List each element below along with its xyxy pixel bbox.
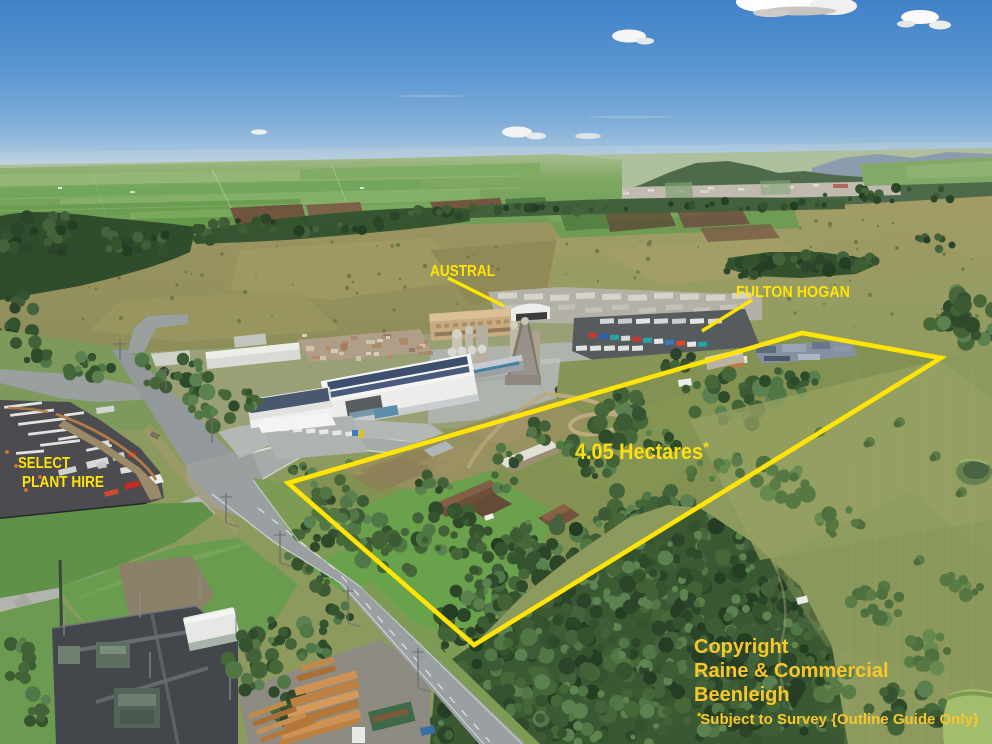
svg-text:Raine & Commercial: Raine & Commercial — [694, 660, 889, 682]
svg-text:*Subject to Survey {Outline Gu: *Subject to Survey {Outline Guide Only} — [697, 711, 979, 728]
svg-text:PLANT HIRE: PLANT HIRE — [22, 474, 104, 491]
svg-text:FULTON HOGAN: FULTON HOGAN — [736, 284, 850, 301]
svg-text:Copyright: Copyright — [694, 636, 789, 658]
svg-text:SELECT: SELECT — [18, 455, 70, 472]
svg-text:AUSTRAL: AUSTRAL — [430, 263, 495, 280]
svg-text:Beenleigh: Beenleigh — [694, 684, 790, 706]
svg-text:4.05 Hectares*: 4.05 Hectares* — [575, 439, 709, 464]
